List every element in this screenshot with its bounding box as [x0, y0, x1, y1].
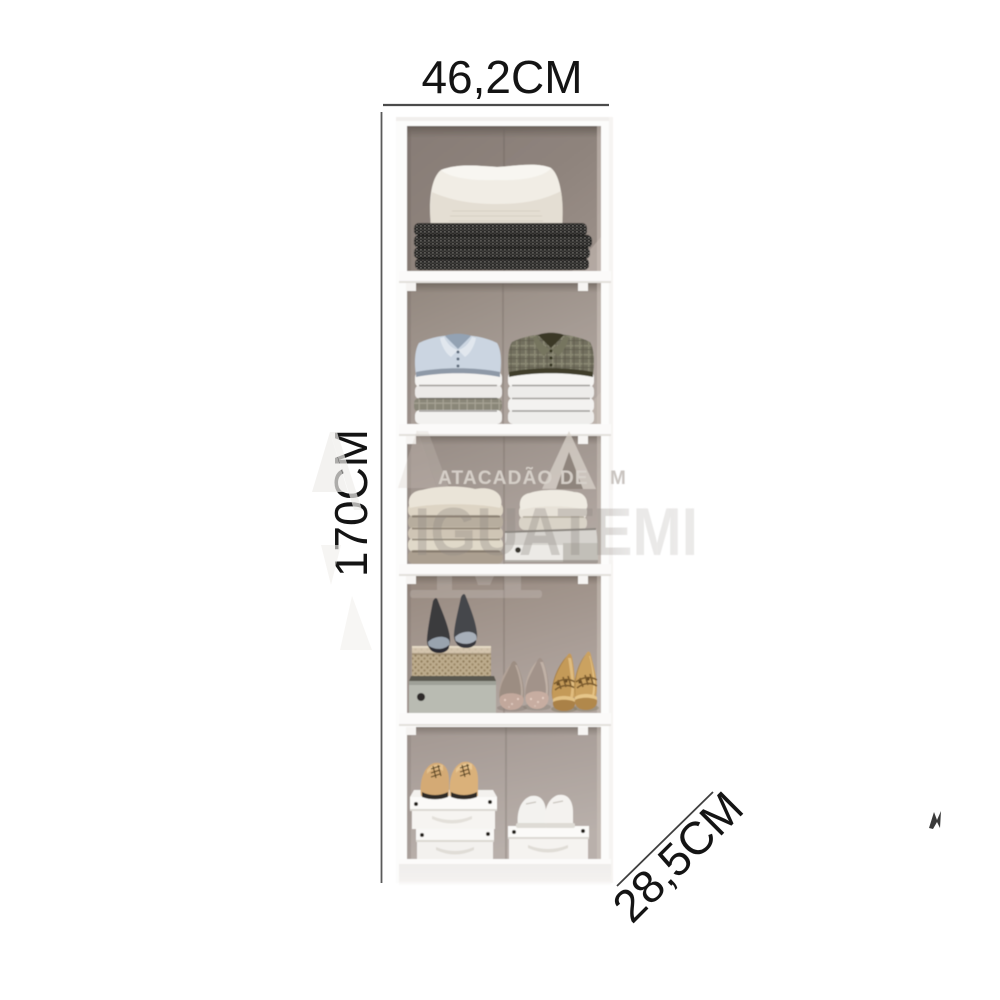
svg-text:ATACADÃO DE: ATACADÃO DE — [438, 467, 589, 489]
svg-text:M: M — [610, 468, 626, 489]
svg-text:46,2CM: 46,2CM — [421, 51, 582, 103]
